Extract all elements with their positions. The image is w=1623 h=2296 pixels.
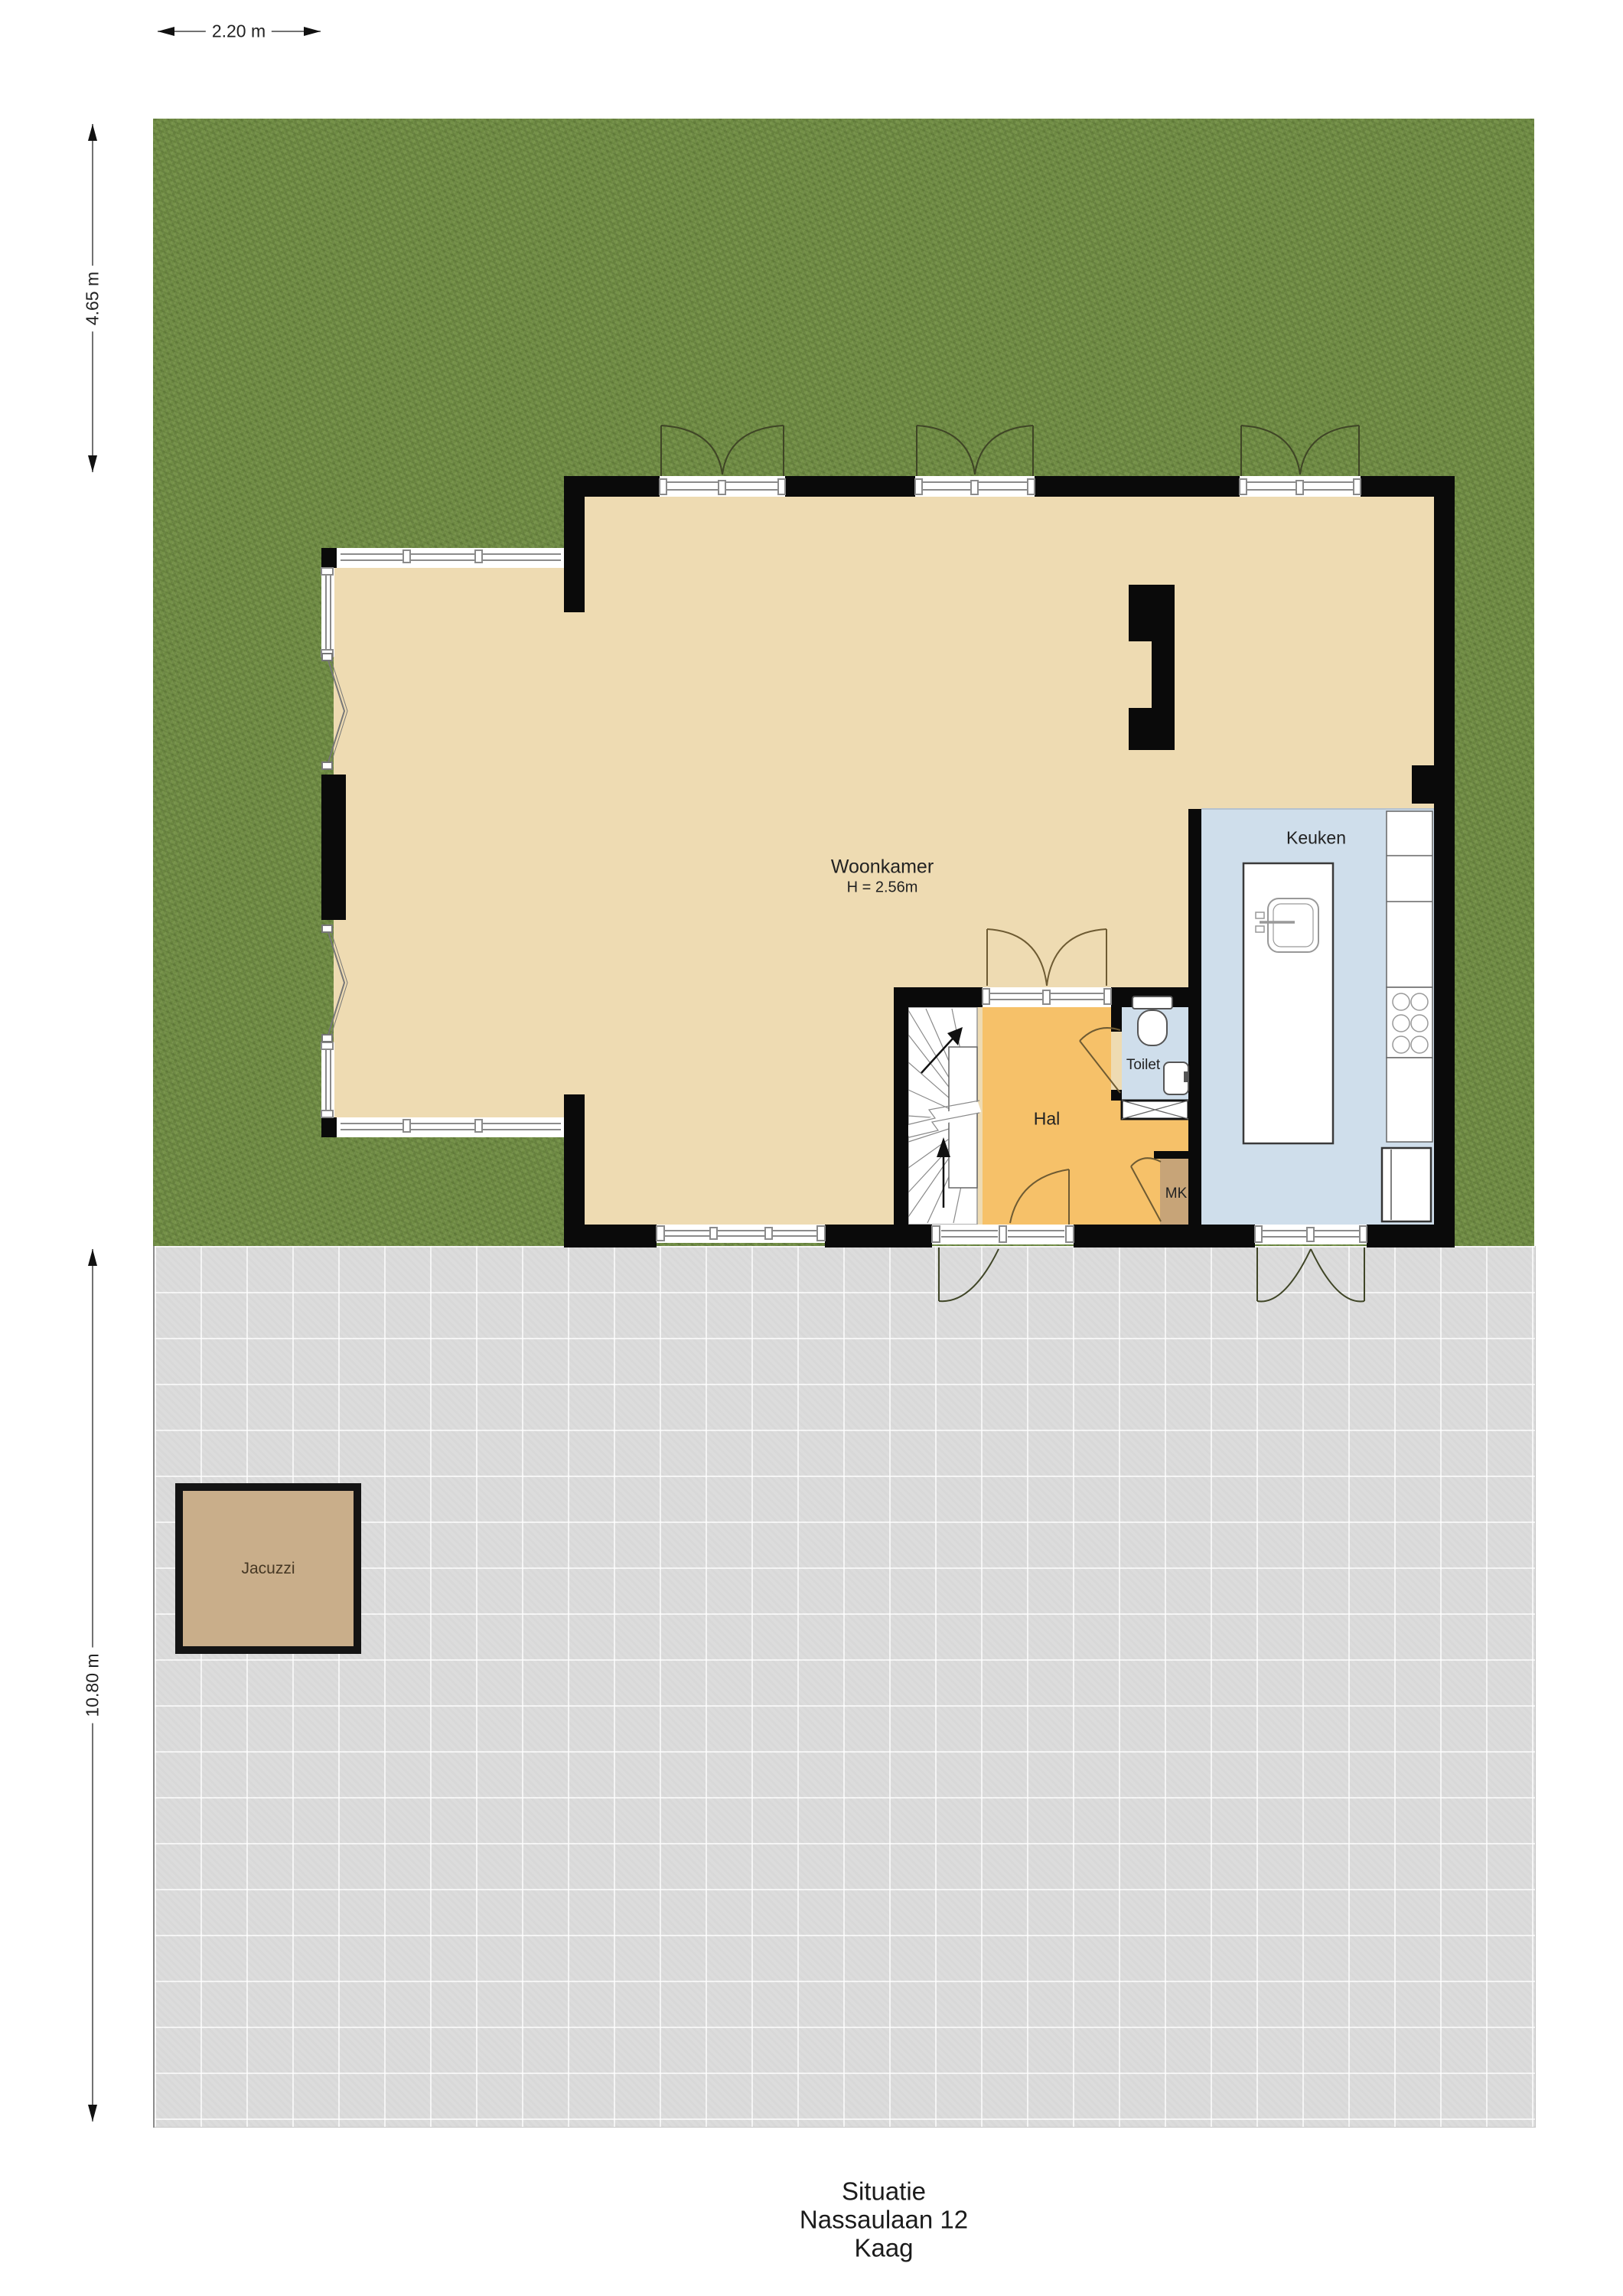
bay-left-window-1 bbox=[321, 568, 334, 657]
arrowhead-right-icon bbox=[304, 27, 321, 36]
terrace-door-sill bbox=[1255, 1225, 1367, 1244]
floorplan-drawing bbox=[0, 0, 1623, 2296]
caption-city: Kaag bbox=[800, 2234, 968, 2262]
bay-bottom-window bbox=[337, 1117, 564, 1137]
kitchen-counter bbox=[1387, 811, 1432, 1142]
bay-top-window bbox=[337, 548, 564, 568]
jacuzzi: Jacuzzi bbox=[175, 1483, 361, 1654]
room-label-woonkamer: Woonkamer bbox=[831, 856, 934, 879]
jacuzzi-label: Jacuzzi bbox=[241, 1560, 295, 1578]
dimension-top: 2.20 m bbox=[206, 21, 272, 43]
hal-door-sill bbox=[983, 987, 1111, 1007]
hatched-cabinet bbox=[1122, 1101, 1188, 1119]
room-label-mk: MK bbox=[1165, 1186, 1188, 1202]
kitchen-appliance bbox=[1382, 1148, 1431, 1221]
floorplan-page: Woonkamer H = 2.56m Keuken Hal Toilet MK… bbox=[0, 0, 1623, 2296]
arrowhead-up-icon bbox=[88, 1249, 97, 1266]
toilet-sink bbox=[1164, 1062, 1189, 1094]
garden-door-sill-3 bbox=[1240, 476, 1361, 497]
arrowhead-down-icon bbox=[88, 455, 97, 472]
caption-situatie: Situatie bbox=[800, 2177, 968, 2206]
dimension-garden-depth: 4.65 m bbox=[82, 266, 104, 331]
garden-door-sill-1 bbox=[660, 476, 785, 497]
bay-left-window-2 bbox=[321, 1042, 334, 1117]
plan-caption: Situatie Nassaulaan 12 Kaag bbox=[800, 2177, 968, 2262]
room-note-woonkamer-height: H = 2.56m bbox=[847, 879, 918, 897]
dimension-terrace-depth: 10.80 m bbox=[82, 1647, 104, 1723]
garden-door-sill-2 bbox=[915, 476, 1035, 497]
room-label-keuken: Keuken bbox=[1286, 828, 1346, 849]
room-label-hal: Hal bbox=[1034, 1109, 1061, 1130]
room-label-toilet: Toilet bbox=[1126, 1057, 1160, 1074]
bay-floor bbox=[334, 568, 583, 1117]
staircase bbox=[906, 1007, 979, 1225]
dimension-lines bbox=[88, 27, 321, 2122]
bay-passage-floor bbox=[564, 612, 585, 1094]
toilet-fixture bbox=[1133, 996, 1172, 1045]
arrowhead-up-icon bbox=[88, 124, 97, 141]
arrowhead-left-icon bbox=[158, 27, 174, 36]
caption-address: Nassaulaan 12 bbox=[800, 2206, 968, 2234]
arrowhead-down-icon bbox=[88, 2105, 97, 2122]
front-door-swing bbox=[939, 1249, 999, 1301]
rear-window-band bbox=[657, 1225, 825, 1243]
